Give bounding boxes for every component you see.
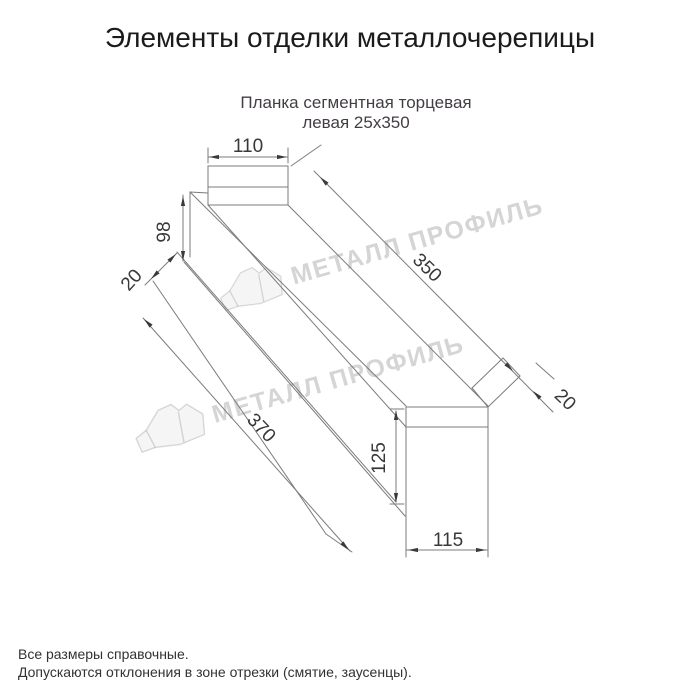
metall-profil-logo-icon <box>130 397 210 456</box>
dim-label-left-height: 98 <box>154 221 175 242</box>
note-line-2: Допускаются отклонения в зоне отрезки (с… <box>18 663 412 681</box>
dim-label-right-fold: 20 <box>550 385 580 415</box>
watermark-bottom: МЕТАЛЛ ПРОФИЛЬ <box>130 322 469 455</box>
drawing-page: Элементы отделки металлочерепицы Планка … <box>0 0 700 700</box>
dim-label-left-fold: 20 <box>117 265 147 295</box>
dim-label-right-height: 125 <box>369 442 390 474</box>
watermark-text: МЕТАЛЛ ПРОФИЛЬ <box>209 330 468 429</box>
note-line-1: Все размеры справочные. <box>18 645 412 663</box>
dimension-labels: 110 98 20 350 370 20 125 115 <box>117 136 580 551</box>
technical-drawing: МЕТАЛЛ ПРОФИЛЬ МЕТАЛЛ ПРОФИЛЬ <box>0 0 700 700</box>
metall-profil-logo-icon <box>215 261 287 314</box>
dim-label-bottom-width: 115 <box>433 530 463 551</box>
footnotes: Все размеры справочные. Допускаются откл… <box>18 645 412 681</box>
dim-label-top-width: 110 <box>233 136 263 157</box>
